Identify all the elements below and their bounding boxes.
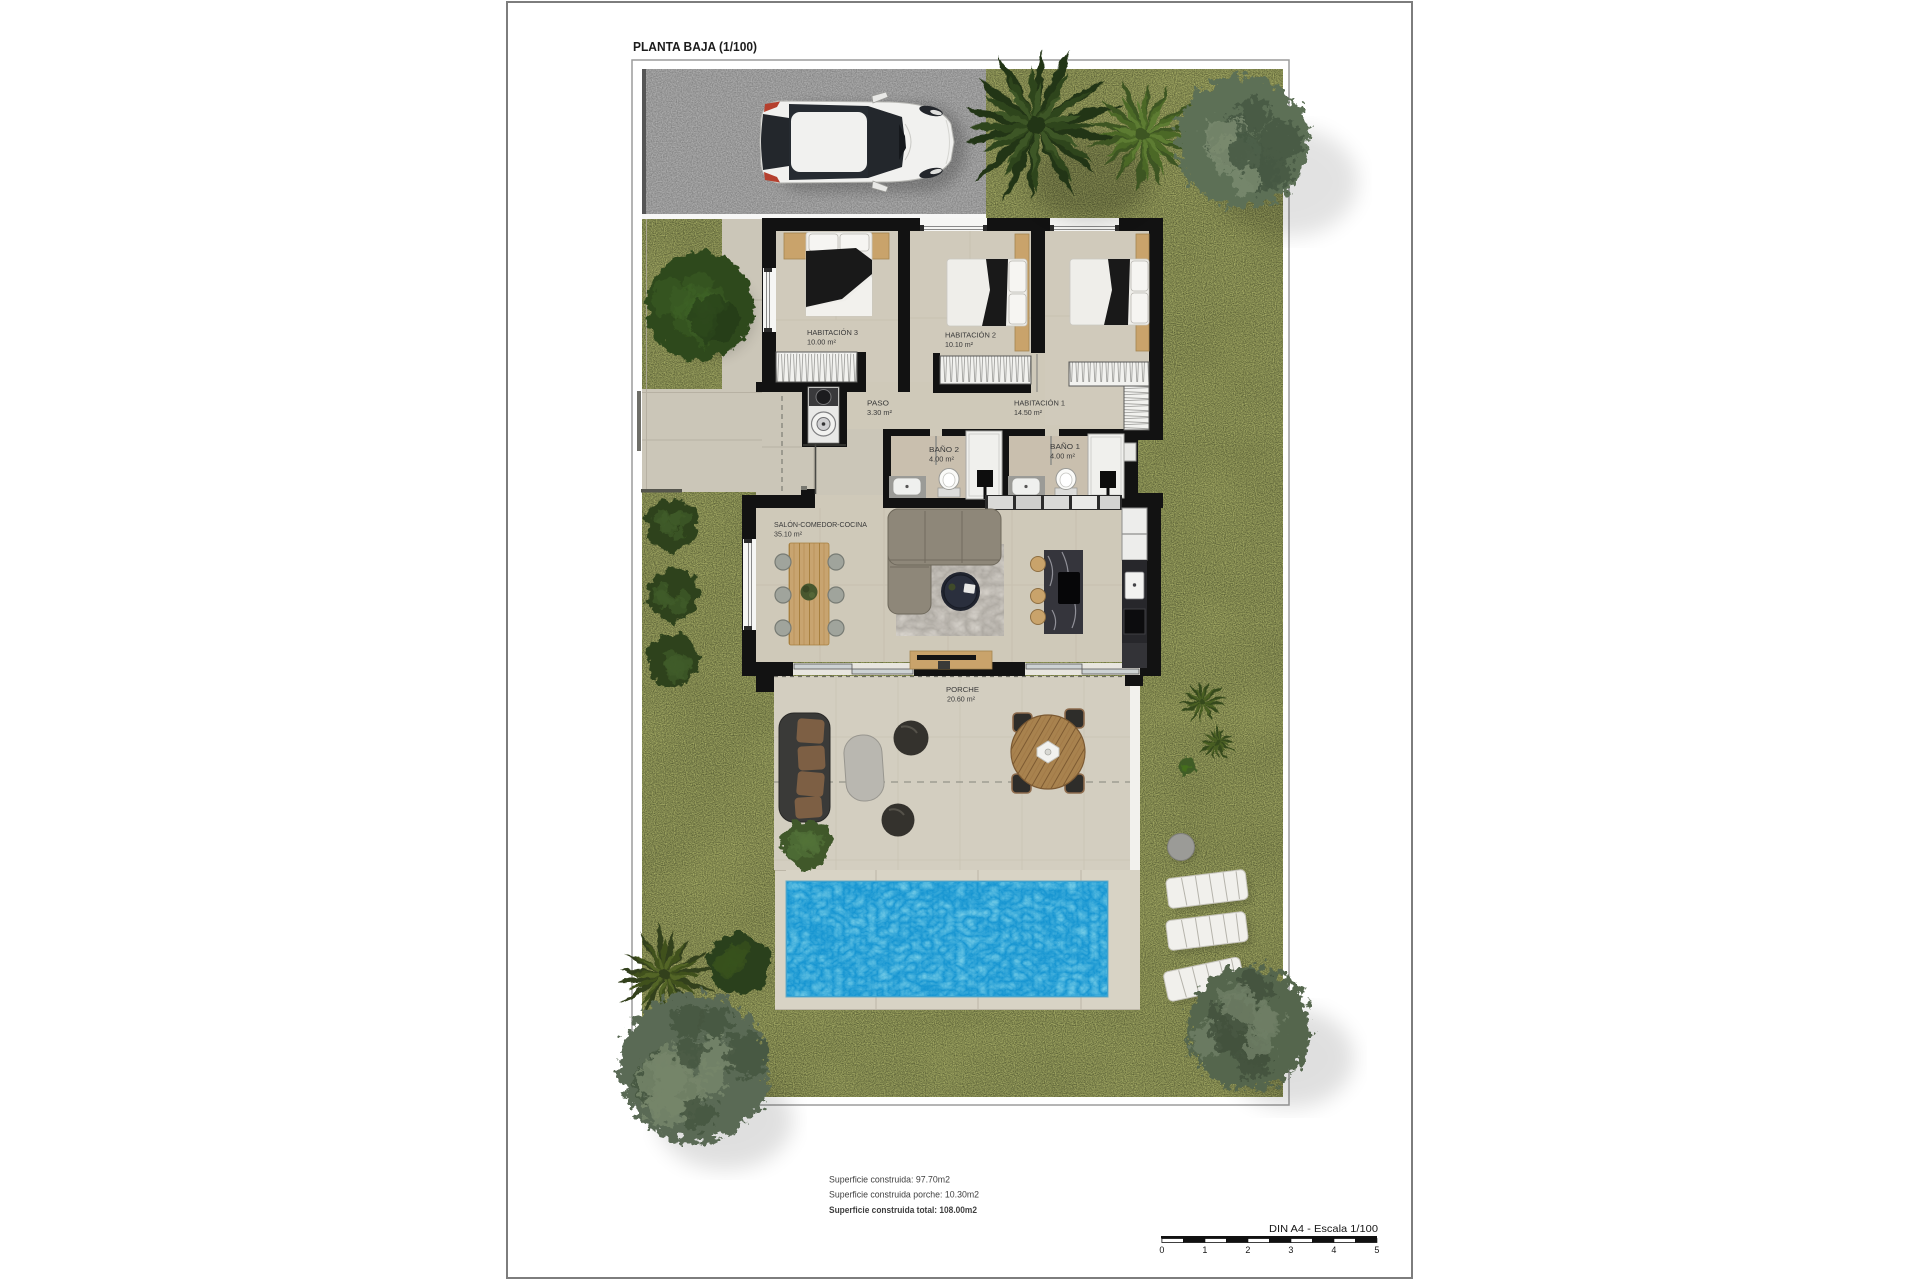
svg-text:HABITACIÓN 1: HABITACIÓN 1 [1014, 399, 1065, 408]
svg-text:BAÑO 1: BAÑO 1 [1050, 442, 1080, 451]
svg-text:5: 5 [1374, 1245, 1379, 1255]
svg-text:35.10 m²: 35.10 m² [774, 532, 803, 539]
svg-text:20.60 m²: 20.60 m² [947, 697, 976, 704]
svg-text:10.00 m²: 10.00 m² [807, 340, 837, 347]
svg-text:10.10 m²: 10.10 m² [945, 342, 974, 349]
svg-text:HABITACIÓN 3: HABITACIÓN 3 [807, 328, 858, 337]
svg-text:Superficie construida total: 1: Superficie construida total: 108.00m2 [829, 1205, 977, 1215]
svg-text:4: 4 [1331, 1245, 1336, 1255]
svg-text:PLANTA BAJA (1/100): PLANTA BAJA (1/100) [633, 40, 757, 54]
svg-text:SALÓN-COMEDOR-COCINA: SALÓN-COMEDOR-COCINA [774, 520, 867, 529]
svg-text:4.00 m²: 4.00 m² [1050, 454, 1076, 461]
svg-text:4.00 m²: 4.00 m² [929, 457, 955, 464]
svg-text:HABITACIÓN 2: HABITACIÓN 2 [945, 331, 996, 340]
svg-text:3.30 m²: 3.30 m² [867, 410, 893, 417]
svg-text:0: 0 [1159, 1245, 1164, 1255]
svg-text:BAÑO 2: BAÑO 2 [929, 445, 959, 454]
svg-text:Superficie construida porche:: Superficie construida porche: 10.30m2 [829, 1190, 979, 1200]
svg-text:PASO: PASO [867, 401, 890, 408]
svg-text:14.50 m²: 14.50 m² [1014, 410, 1043, 417]
svg-text:3: 3 [1288, 1245, 1293, 1255]
svg-text:DIN A4 - Escala 1/100: DIN A4 - Escala 1/100 [1269, 1223, 1378, 1235]
svg-text:2: 2 [1245, 1245, 1250, 1255]
svg-text:1: 1 [1202, 1245, 1207, 1255]
svg-text:PORCHE: PORCHE [946, 687, 979, 694]
svg-text:Superficie construida: 97.70m2: Superficie construida: 97.70m2 [829, 1175, 950, 1185]
